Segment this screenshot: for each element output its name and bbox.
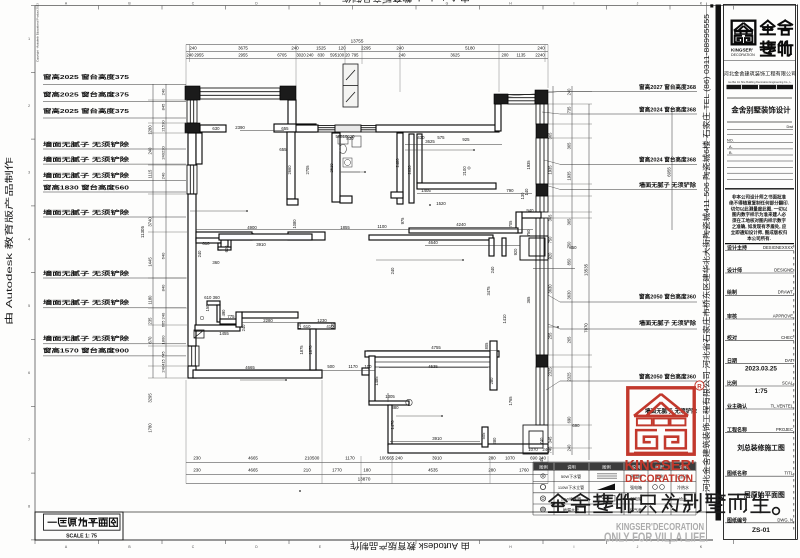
svg-text:2955: 2955 <box>238 53 248 58</box>
svg-text:21530: 21530 <box>161 120 166 132</box>
svg-text:240: 240 <box>537 46 545 51</box>
svg-text:805: 805 <box>484 342 489 350</box>
svg-text:4665: 4665 <box>248 468 258 473</box>
svg-text:窗高1570 窗台高度900: 窗高1570 窗台高度900 <box>43 347 129 355</box>
svg-text:840: 840 <box>161 284 166 291</box>
svg-text:NO.: NO. <box>727 139 734 143</box>
svg-text:1470: 1470 <box>390 420 395 430</box>
svg-text:3: 3 <box>28 171 30 175</box>
svg-text:630: 630 <box>212 126 220 131</box>
svg-text:150: 150 <box>205 304 210 312</box>
svg-text:3020: 3020 <box>296 53 306 58</box>
svg-text:KINGSER': KINGSER' <box>731 48 753 53</box>
svg-text:1: 1 <box>28 37 30 41</box>
svg-text:3910: 3910 <box>432 456 442 461</box>
svg-text:280: 280 <box>488 456 496 461</box>
svg-text:230: 230 <box>193 456 201 461</box>
svg-text:2630: 2630 <box>407 165 412 175</box>
svg-text:1115: 1115 <box>148 169 153 178</box>
svg-text:7: 7 <box>28 438 30 442</box>
svg-text:3625: 3625 <box>450 53 460 58</box>
svg-text:1070: 1070 <box>528 447 538 452</box>
svg-text:100: 100 <box>364 364 372 369</box>
svg-text:J: J <box>637 2 639 6</box>
svg-text:2705: 2705 <box>305 165 310 175</box>
svg-text:图例: 图例 <box>602 463 610 470</box>
svg-text:墙面无腻子 无须铲除: 墙面无腻子 无须铲除 <box>639 181 696 189</box>
svg-text:240: 240 <box>161 88 166 95</box>
svg-text:925: 925 <box>462 137 470 142</box>
svg-text:DESIGNE: DESIGNE <box>774 268 793 273</box>
svg-text:1135: 1135 <box>516 53 526 58</box>
svg-text:3475: 3475 <box>486 286 491 296</box>
svg-text:690: 690 <box>567 416 572 424</box>
svg-text:1445: 1445 <box>148 257 153 267</box>
svg-text:13535: 13535 <box>584 263 589 276</box>
svg-text:1770: 1770 <box>332 468 342 473</box>
svg-text:窗高2025 窗台高度375: 窗高2025 窗台高度375 <box>43 91 130 99</box>
svg-text:DAT: DAT <box>785 358 794 363</box>
svg-text:690: 690 <box>572 423 580 428</box>
svg-text:墙面无腻子 无须铲除: 墙面无腻子 无须铲除 <box>639 319 696 327</box>
svg-text:610: 610 <box>202 241 210 246</box>
svg-text:240: 240 <box>542 447 550 452</box>
svg-text:1170: 1170 <box>345 456 355 461</box>
svg-text:240: 240 <box>161 172 166 179</box>
svg-text:2023.03.25: 2023.03.25 <box>745 366 777 373</box>
svg-text:5: 5 <box>28 304 30 308</box>
svg-text:DESIGNEXXXX: DESIGNEXXXX <box>763 245 793 250</box>
svg-text:1:75: 1:75 <box>755 388 768 395</box>
svg-text:由 Autodesk 教育版产品制作: 由 Autodesk 教育版产品制作 <box>350 541 470 552</box>
svg-text:河北金舍建筑装饰工程有限公司: 河北金舍建筑装饰工程有限公司 <box>724 70 797 78</box>
svg-text:1875: 1875 <box>299 345 304 355</box>
svg-text:ZS-01: ZS-01 <box>752 527 770 534</box>
svg-text:R: R <box>697 383 702 390</box>
svg-text:670: 670 <box>148 336 153 344</box>
svg-text:墙面无腻子 无须铲除: 墙面无腻子 无须铲除 <box>43 335 129 343</box>
svg-text:I: I <box>574 545 575 549</box>
svg-text:窗高2027 窗台高度368: 窗高2027 窗台高度368 <box>639 83 697 91</box>
svg-text:640: 640 <box>161 252 166 259</box>
svg-text:200: 200 <box>502 53 510 58</box>
svg-text:7870: 7870 <box>584 323 589 333</box>
svg-text:Dwt: Dwt <box>786 125 793 129</box>
svg-text:6: 6 <box>28 371 30 375</box>
svg-text:4535: 4535 <box>428 468 438 473</box>
svg-text:TL.VENTEL: TL.VENTEL <box>771 404 794 409</box>
svg-text:430: 430 <box>417 135 425 140</box>
svg-text:775: 775 <box>227 314 235 319</box>
svg-text:210500: 210500 <box>305 456 320 461</box>
svg-text:240: 240 <box>241 324 246 332</box>
svg-text:3910: 3910 <box>432 436 442 441</box>
svg-text:880: 880 <box>391 405 399 410</box>
svg-text:2240: 2240 <box>535 53 545 58</box>
svg-text:230: 230 <box>193 468 201 473</box>
svg-text:240: 240 <box>187 53 195 58</box>
svg-text:850: 850 <box>569 245 577 250</box>
svg-text:790: 790 <box>506 188 514 193</box>
svg-text:DECORATION: DECORATION <box>731 53 755 57</box>
svg-text:365: 365 <box>567 218 572 226</box>
svg-text:280: 280 <box>492 437 497 445</box>
svg-text:3910: 3910 <box>256 242 266 247</box>
svg-text:SCALE 1: 75: SCALE 1: 75 <box>66 534 97 540</box>
svg-text:13755: 13755 <box>351 39 364 44</box>
svg-text:2100: 2100 <box>462 166 467 176</box>
svg-text:1100: 1100 <box>377 224 387 229</box>
svg-text:CHEC: CHEC <box>781 335 793 340</box>
svg-text:2325: 2325 <box>567 372 572 382</box>
svg-text:240: 240 <box>197 250 202 258</box>
svg-text:240: 240 <box>148 147 153 155</box>
svg-text:505: 505 <box>481 432 486 440</box>
svg-text:2955: 2955 <box>194 53 204 58</box>
svg-text:705: 705 <box>508 220 513 228</box>
svg-text:1485: 1485 <box>374 376 379 386</box>
svg-text:1525: 1525 <box>316 46 326 51</box>
svg-text:2660: 2660 <box>287 165 292 175</box>
svg-text:1935: 1935 <box>567 171 572 181</box>
svg-text:240: 240 <box>567 444 572 452</box>
svg-text:940: 940 <box>526 208 534 213</box>
svg-text:1520: 1520 <box>436 201 446 206</box>
svg-text:墙面无腻子 无须铲除: 墙面无腻子 无须铲除 <box>43 209 129 217</box>
svg-text:240415 745: 240415 745 <box>161 351 166 373</box>
svg-text:100565 240: 100565 240 <box>379 456 403 461</box>
svg-text:DRAWT: DRAWT <box>778 290 794 295</box>
svg-text:1080: 1080 <box>292 219 297 229</box>
svg-text:240: 240 <box>399 53 407 58</box>
svg-text:180: 180 <box>363 468 371 473</box>
svg-text:2480: 2480 <box>395 158 400 168</box>
svg-text:窗高2050 窗台高度360: 窗高2050 窗台高度360 <box>639 373 696 381</box>
svg-text:210: 210 <box>303 468 311 473</box>
svg-text:1870: 1870 <box>308 345 313 355</box>
svg-text:墙面无腻子 无须铲除: 墙面无腻子 无须铲除 <box>43 299 129 307</box>
svg-text:240: 240 <box>396 46 404 51</box>
svg-text:735: 735 <box>567 106 572 114</box>
svg-text:3675: 3675 <box>238 46 248 51</box>
svg-text:刘总装修施工图: 刘总装修施工图 <box>737 443 785 452</box>
svg-text:由 Autodesk 教育版产品制作: 由 Autodesk 教育版产品制作 <box>3 156 14 325</box>
svg-text:6705: 6705 <box>277 53 287 58</box>
svg-text:2: 2 <box>28 104 30 108</box>
svg-text:365: 365 <box>526 296 531 304</box>
svg-text:2610: 2610 <box>329 163 334 173</box>
svg-text:240: 240 <box>490 266 495 274</box>
svg-text:1760: 1760 <box>519 468 529 473</box>
svg-text:由 Autodesk 教育版产品制作: 由 Autodesk 教育版产品制作 <box>342 0 470 5</box>
svg-text:140: 140 <box>524 188 529 196</box>
svg-text:280: 280 <box>488 468 496 473</box>
svg-text:240: 240 <box>307 53 315 58</box>
svg-text:595100 20: 595100 20 <box>330 53 350 58</box>
svg-text:4535: 4535 <box>428 364 438 369</box>
svg-text:50W下水管: 50W下水管 <box>561 473 581 479</box>
svg-text:920: 920 <box>513 248 518 256</box>
svg-text:265: 265 <box>567 336 572 344</box>
svg-text:490: 490 <box>221 309 226 317</box>
svg-text:窗高1830 窗台高度560: 窗高1830 窗台高度560 <box>43 184 129 192</box>
svg-text:110W下水立管: 110W下水立管 <box>558 484 584 490</box>
svg-text:B.: B. <box>729 151 733 155</box>
svg-text:850: 850 <box>567 258 572 266</box>
svg-text:A.: A. <box>729 145 733 149</box>
svg-text:PROJEC: PROJEC <box>776 427 793 432</box>
svg-text:1935: 1935 <box>526 160 531 170</box>
svg-text:3625: 3625 <box>425 139 435 144</box>
svg-text:He Bei Jin She Building Decora: He Bei Jin She Building Decoration Engin… <box>728 80 792 84</box>
svg-text:DWG. N: DWG. N <box>777 517 793 522</box>
svg-text:240: 240 <box>390 267 395 275</box>
svg-text:795: 795 <box>352 53 360 58</box>
svg-text:13870: 13870 <box>358 477 371 482</box>
svg-text:河北金舍建筑装饰工程有限公司 河北省石家庄市桥东区建华北大街: 河北金舍建筑装饰工程有限公司 河北省石家庄市桥东区建华北大街陶瓷城411 506… <box>701 14 711 492</box>
svg-text:740: 740 <box>539 437 544 445</box>
svg-text:墙面无腻子 无须铲除: 墙面无腻子 无须铲除 <box>43 172 129 180</box>
svg-text:APPROVE: APPROVE <box>773 314 793 319</box>
svg-text:1780: 1780 <box>148 423 153 433</box>
svg-text:4240: 4240 <box>456 222 466 227</box>
svg-text:975: 975 <box>400 217 405 225</box>
svg-text:620: 620 <box>224 245 229 253</box>
svg-text:845: 845 <box>161 103 166 110</box>
svg-text:窗高2024 窗台高度368: 窗高2024 窗台高度368 <box>639 156 697 164</box>
svg-text:本公司所有.: 本公司所有. <box>747 235 771 242</box>
svg-text:4665: 4665 <box>245 365 255 370</box>
svg-text:4: 4 <box>28 237 30 241</box>
svg-text:120: 120 <box>297 322 302 330</box>
svg-text:5180: 5180 <box>465 46 475 51</box>
svg-text:窗高2024 窗台高度368: 窗高2024 窗台高度368 <box>639 106 697 114</box>
svg-text:240: 240 <box>291 46 299 51</box>
svg-text:Copyright - Autodesk Education: Copyright - Autodesk Educational Product… <box>36 3 40 62</box>
svg-text:3630: 3630 <box>567 290 572 300</box>
svg-text:1405: 1405 <box>421 188 431 193</box>
svg-text:窗高2025 窗台高度375: 窗高2025 窗台高度375 <box>43 107 130 115</box>
svg-text:说明: 说明 <box>567 463 575 470</box>
svg-text:1170: 1170 <box>348 364 358 369</box>
svg-text:1070: 1070 <box>505 456 515 461</box>
svg-text:655: 655 <box>279 147 287 152</box>
svg-text:1765: 1765 <box>508 396 513 406</box>
svg-text:11305: 11305 <box>140 226 145 238</box>
svg-text:金舍别墅装饰设计: 金舍别墅装饰设计 <box>730 106 791 115</box>
svg-text:J: J <box>637 545 639 549</box>
svg-text:610 360: 610 360 <box>204 295 220 300</box>
svg-text:240: 240 <box>189 46 197 51</box>
svg-text:365: 365 <box>567 142 572 150</box>
svg-text:窗高2050 窗台高度360: 窗高2050 窗台高度360 <box>639 293 696 301</box>
svg-text:1455: 1455 <box>219 331 229 336</box>
svg-text:59510020: 59510020 <box>335 134 355 139</box>
svg-text:3740: 3740 <box>148 217 153 227</box>
svg-text:575: 575 <box>437 135 445 140</box>
svg-text:240220: 240220 <box>161 146 166 160</box>
svg-text:8: 8 <box>28 505 30 509</box>
svg-text:4665: 4665 <box>248 456 258 461</box>
svg-text:830: 830 <box>318 53 326 58</box>
svg-text:1410: 1410 <box>502 314 507 324</box>
svg-text:图例: 图例 <box>539 463 547 470</box>
svg-text:750: 750 <box>526 229 531 237</box>
svg-text:墙面无腻子 无须铲除: 墙面无腻子 无须铲除 <box>43 141 129 149</box>
svg-text:ONLY FOR VILLA LIFE.: ONLY FOR VILLA LIFE. <box>604 531 708 545</box>
svg-text:500: 500 <box>327 364 335 369</box>
svg-text:3295: 3295 <box>148 393 153 403</box>
svg-text:6955: 6955 <box>667 167 672 177</box>
svg-text:墙面无腻子 无须铲除: 墙面无腻子 无须铲除 <box>43 270 129 278</box>
svg-text:DECORATION: DECORATION <box>625 473 693 485</box>
svg-text:280: 280 <box>489 377 494 385</box>
svg-text:墙面无腻子 无须铲除: 墙面无腻子 无须铲除 <box>43 156 129 164</box>
svg-text:TITL: TITL <box>784 471 793 476</box>
svg-text:1800: 1800 <box>161 335 166 345</box>
svg-text:窗高2025 窗台高度375: 窗高2025 窗台高度375 <box>43 73 130 81</box>
svg-text:2295: 2295 <box>361 46 371 51</box>
svg-text:2390: 2390 <box>235 125 245 130</box>
svg-text:1180: 1180 <box>148 295 153 305</box>
svg-text:4755: 4755 <box>431 345 441 350</box>
svg-text:360: 360 <box>212 260 220 265</box>
svg-text:610: 610 <box>303 324 311 329</box>
svg-text:120: 120 <box>330 322 335 330</box>
svg-text:SCAL: SCAL <box>782 381 794 386</box>
svg-text:4640: 4640 <box>428 240 438 245</box>
svg-text:I: I <box>574 2 575 6</box>
svg-text:1305: 1305 <box>385 394 395 399</box>
svg-text:235: 235 <box>148 317 153 325</box>
svg-text:KINGSER': KINGSER' <box>625 458 695 474</box>
